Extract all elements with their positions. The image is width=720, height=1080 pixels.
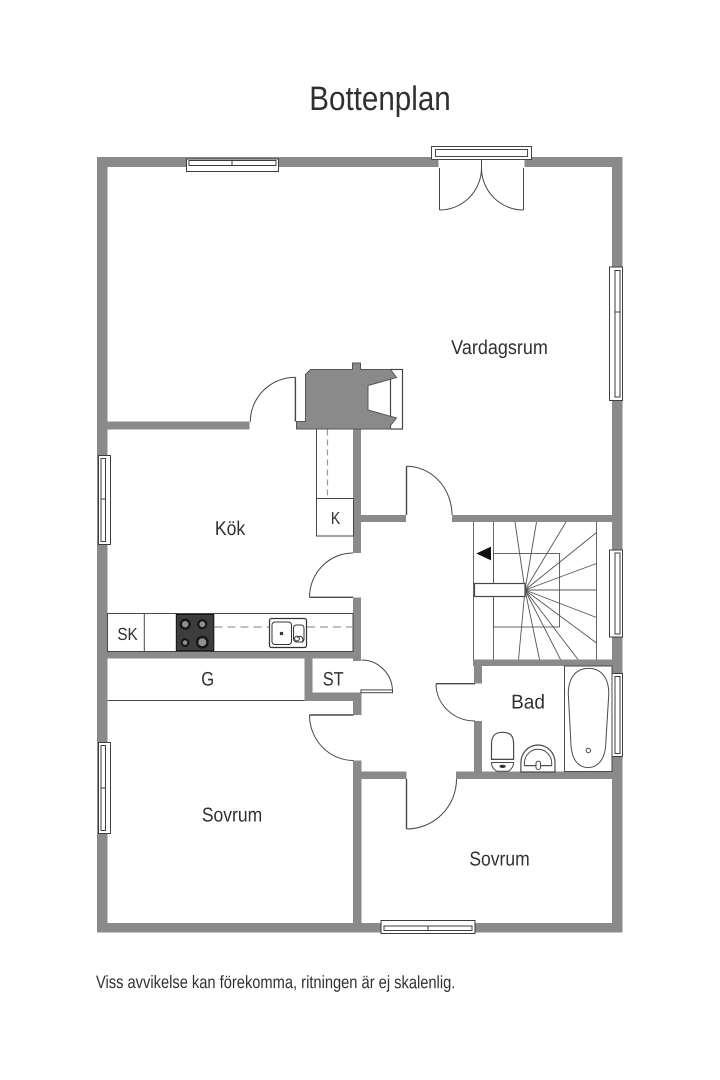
svg-text:Viss avvikelse kan förekomma,: Viss avvikelse kan förekomma, ritningen … [96, 972, 455, 992]
svg-text:Sovrum: Sovrum [202, 804, 262, 826]
svg-text:Kök: Kök [215, 518, 246, 540]
svg-text:K: K [331, 508, 341, 528]
svg-text:Vardagsrum: Vardagsrum [451, 337, 548, 359]
svg-text:ST: ST [323, 668, 344, 690]
svg-text:Sovrum: Sovrum [469, 848, 529, 870]
svg-text:G: G [201, 668, 214, 690]
svg-text:Bad: Bad [511, 691, 545, 713]
svg-text:SK: SK [117, 624, 138, 644]
svg-text:Bottenplan: Bottenplan [309, 80, 450, 118]
